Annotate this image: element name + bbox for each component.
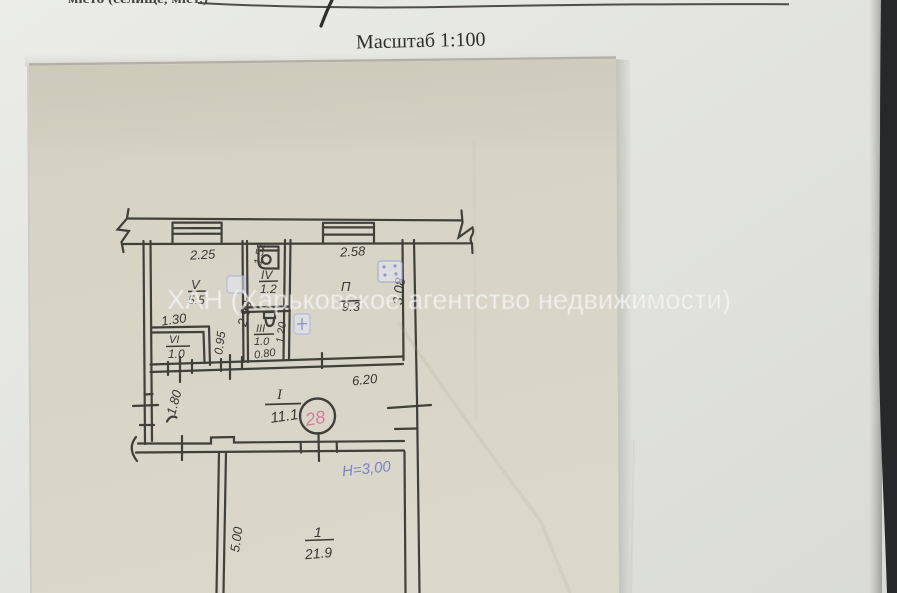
svg-text:I: I bbox=[276, 387, 283, 403]
svg-text:VI: VI bbox=[169, 334, 179, 346]
svg-text:28: 28 bbox=[303, 407, 327, 430]
svg-text:1: 1 bbox=[314, 524, 322, 540]
svg-text:2.58: 2.58 bbox=[339, 243, 367, 259]
svg-text:ХАН (Харьковское агентство нед: ХАН (Харьковское агентство недвижимости) bbox=[167, 284, 731, 315]
svg-text:6.20: 6.20 bbox=[351, 371, 378, 389]
svg-text:III: III bbox=[256, 323, 265, 335]
svg-text:місто (селище, міст.): місто (селище, міст.) bbox=[68, 0, 208, 6]
svg-text:21.9: 21.9 bbox=[303, 544, 333, 562]
svg-text:1.0: 1.0 bbox=[168, 347, 185, 361]
svg-text:IV: IV bbox=[261, 268, 273, 282]
svg-text:1.0: 1.0 bbox=[254, 336, 270, 348]
svg-text:Масштаб 1:100: Масштаб 1:100 bbox=[356, 29, 486, 54]
svg-text:2.25: 2.25 bbox=[189, 246, 217, 262]
